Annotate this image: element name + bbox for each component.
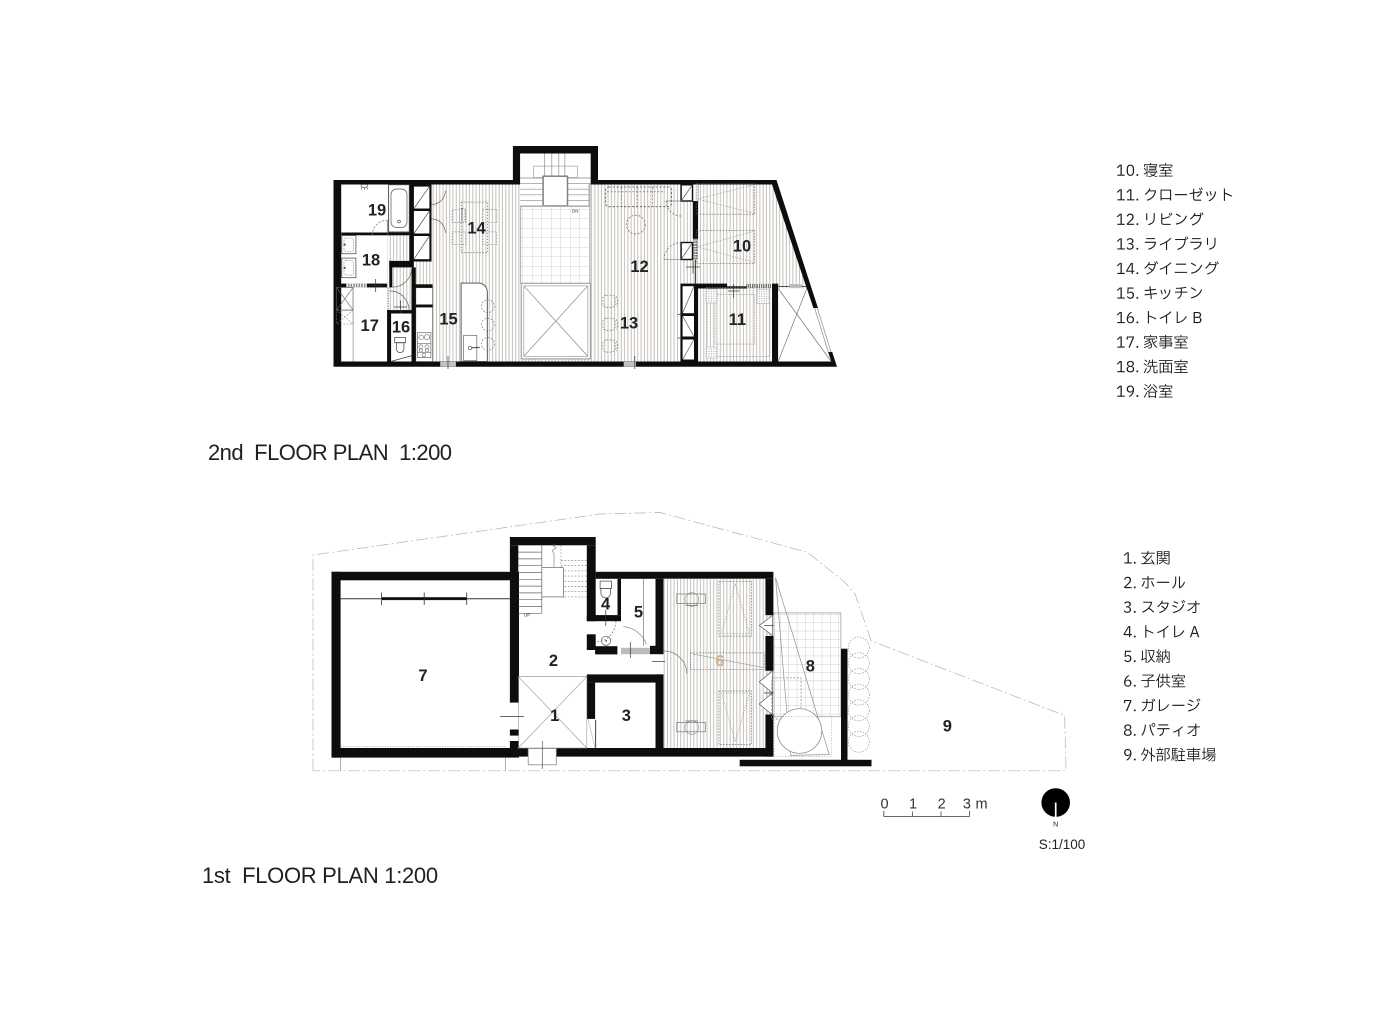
- svg-text:DN: DN: [572, 209, 579, 214]
- svg-text:m: m: [975, 797, 987, 813]
- svg-text:10: 10: [733, 238, 751, 256]
- svg-text:1: 1: [909, 797, 917, 813]
- svg-text:0: 0: [880, 797, 888, 813]
- svg-text:7: 7: [418, 667, 427, 685]
- svg-text:6: 6: [715, 652, 724, 670]
- svg-text:UP: UP: [524, 613, 530, 618]
- svg-text:11: 11: [729, 311, 746, 329]
- svg-text:2: 2: [549, 652, 558, 670]
- svg-text:N: N: [1053, 822, 1058, 829]
- svg-text:1st FLOOR PLAN 1:200: 1st FLOOR PLAN 1:200: [202, 863, 438, 888]
- svg-text:1: 1: [550, 707, 559, 725]
- svg-text:8: 8: [806, 658, 815, 676]
- svg-text:2nd FLOOR PLAN 1:200: 2nd FLOOR PLAN 1:200: [208, 440, 452, 465]
- svg-text:4: 4: [601, 596, 611, 614]
- svg-text:2: 2: [938, 797, 946, 813]
- svg-text:17: 17: [361, 317, 379, 335]
- svg-text:14: 14: [467, 220, 486, 238]
- svg-text:19: 19: [368, 202, 386, 220]
- svg-text:18: 18: [362, 252, 380, 270]
- svg-text:3: 3: [622, 707, 631, 725]
- svg-text:3: 3: [963, 797, 971, 813]
- svg-text:S:1/100: S:1/100: [1039, 837, 1086, 852]
- svg-text:5: 5: [634, 604, 643, 622]
- svg-text:12: 12: [630, 258, 648, 276]
- svg-text:16: 16: [392, 319, 410, 337]
- svg-text:15: 15: [439, 311, 457, 329]
- svg-text:9: 9: [943, 717, 952, 735]
- svg-text:13: 13: [620, 315, 638, 333]
